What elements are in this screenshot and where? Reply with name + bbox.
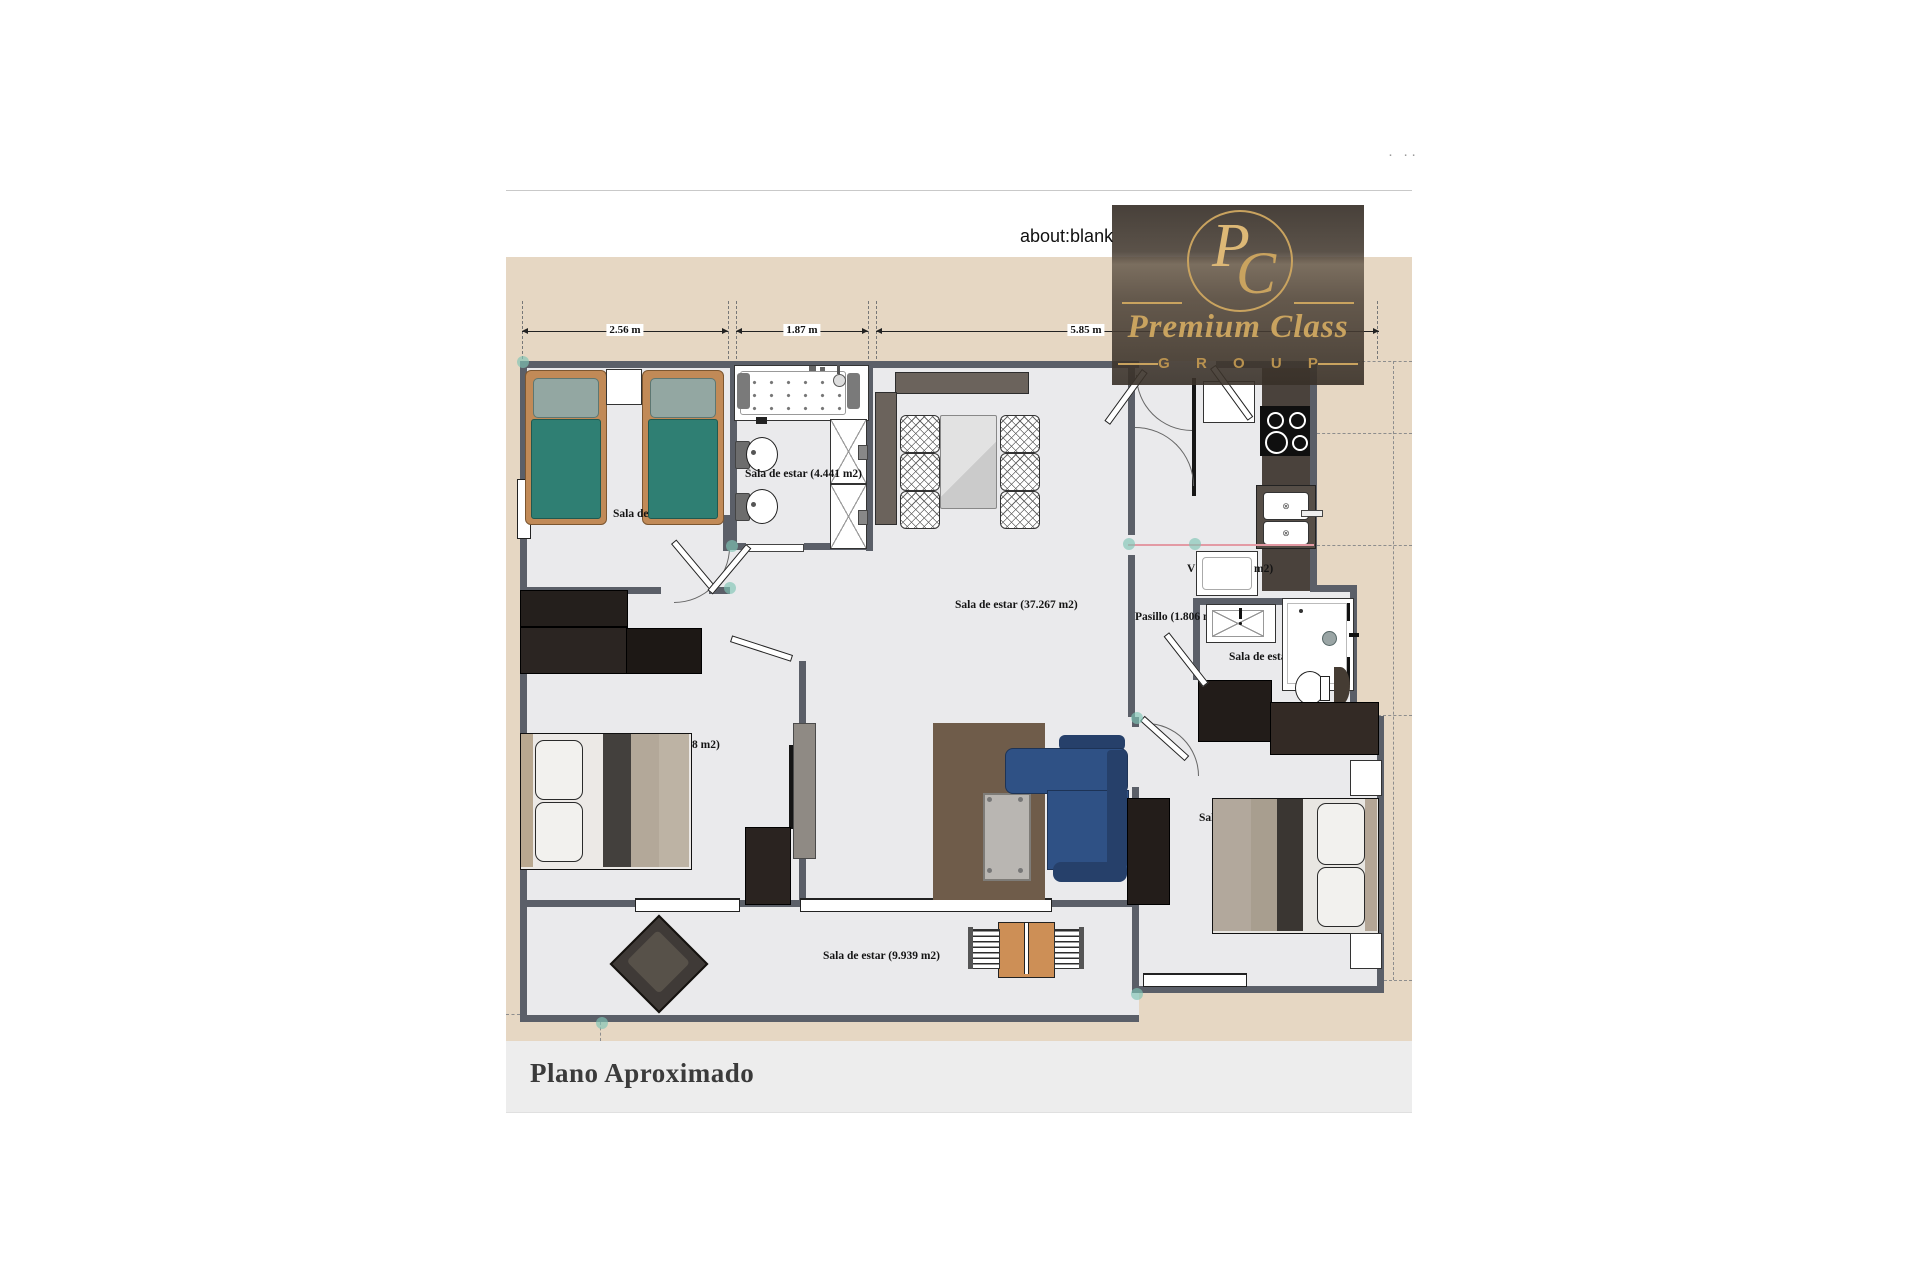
sideboard [875, 392, 897, 525]
bathtub-pad [847, 373, 860, 409]
armchair-cushion [626, 930, 690, 994]
vanity-basin [1212, 610, 1264, 637]
cooktop [1260, 406, 1310, 456]
logo-line [1118, 363, 1158, 365]
table-leg [1018, 797, 1023, 802]
wardrobe [520, 590, 628, 627]
logo-line [1294, 302, 1354, 304]
bathtub-faucet [833, 374, 846, 387]
burner [1289, 412, 1306, 429]
sink-faucet [1301, 510, 1323, 517]
dresser [793, 723, 816, 859]
table-leg [987, 797, 992, 802]
dimension-label: 2.56 m [606, 324, 643, 336]
coffee-table [983, 793, 1031, 881]
plan-footer: Plano Aproximado [506, 1041, 1412, 1113]
room-label: 8 m2) [692, 739, 720, 751]
plan-title: Plano Aproximado [530, 1058, 754, 1089]
burner [1267, 412, 1284, 429]
bed-pillow [650, 378, 716, 418]
dining-chair [900, 491, 940, 529]
wall [1128, 555, 1135, 717]
bath-fixture [820, 367, 825, 371]
window [746, 544, 804, 552]
room-label: Sala de estar (37.267 m2) [955, 599, 1078, 611]
nightstand [1350, 760, 1382, 796]
bed-pillow [533, 378, 599, 418]
cabinet [745, 827, 791, 905]
headboard [521, 734, 533, 867]
bath-fixture [809, 366, 816, 371]
bathtub-pad [737, 373, 750, 409]
outdoor-table [998, 922, 1055, 978]
corner-dots: · ·· [1388, 146, 1419, 163]
tv-panel [789, 745, 793, 829]
bed-pillow [1317, 867, 1365, 927]
outdoor-chair [1054, 929, 1082, 969]
wall [1132, 986, 1384, 993]
toilet [735, 436, 779, 472]
premium-class-logo: P C Premium Class G R O U P [1112, 205, 1364, 385]
joint-dot [1189, 538, 1201, 550]
bed-blanket [1251, 799, 1277, 931]
burner [1265, 431, 1288, 454]
joint-dot [517, 356, 529, 368]
dining-chair [900, 453, 940, 491]
dimension-guide [868, 301, 869, 359]
dimension-label: 5.85 m [1067, 324, 1104, 336]
dimension-guide [728, 301, 729, 359]
joint-dot [1131, 712, 1143, 724]
chair-arm [968, 927, 973, 969]
wardrobe [1270, 702, 1379, 755]
table-leg [987, 868, 992, 873]
boundary-dash [1357, 361, 1412, 362]
boundary-dash [506, 1014, 520, 1015]
wardrobe [520, 627, 628, 674]
chair-arm [1079, 927, 1084, 969]
toilet [735, 488, 779, 524]
boundary-dash [1393, 361, 1394, 980]
logo-line [1122, 302, 1182, 304]
room-label: Sala de [613, 508, 648, 520]
headboard [1365, 799, 1377, 931]
dimension-label: 1.87 m [783, 324, 820, 336]
washer [1196, 551, 1258, 596]
boundary-dash [1384, 980, 1412, 981]
toilet-bowl [746, 489, 778, 524]
bathtub-jets [740, 371, 846, 415]
sideboard [895, 372, 1029, 394]
bed-blanket [531, 419, 601, 519]
wall [520, 1015, 1139, 1022]
bed-pillow [1317, 803, 1365, 865]
tv-cabinet [1127, 798, 1170, 905]
shower-door-line [1347, 603, 1350, 621]
wall [1310, 361, 1317, 592]
dining-table [940, 415, 997, 509]
bed-blanket [1277, 799, 1303, 931]
joint-dot [1131, 988, 1143, 1000]
dining-chair [1000, 491, 1040, 529]
logo-brand-name: Premium Class [1112, 308, 1364, 348]
room-label: Sala de estar (4.441 m2) [745, 468, 862, 480]
joint-dot [1123, 538, 1135, 550]
double-bed [1212, 798, 1379, 934]
wardrobe [626, 628, 702, 674]
bath-fixture [756, 417, 767, 424]
boundary-dash [1317, 433, 1412, 434]
dining-chair [1000, 453, 1040, 491]
bed-blanket [648, 419, 718, 519]
vanity-mark-dot [1239, 622, 1242, 625]
logo-monogram-c: C [1236, 243, 1276, 303]
table-leg [1018, 868, 1023, 873]
room-label: m2) [1254, 563, 1273, 575]
room-label: V [1187, 563, 1195, 575]
sofa-armrest [1053, 862, 1127, 882]
bed-blanket [659, 734, 689, 867]
kitchen-sink-unit: ⊗ ⊗ [1256, 485, 1316, 549]
page-divider-line [506, 190, 1412, 191]
joint-dot [596, 1017, 608, 1029]
window [800, 898, 1052, 912]
boundary-dash [1317, 545, 1412, 546]
dimension-line: 2.56 m [522, 331, 728, 332]
toilet-button [751, 502, 756, 507]
nightstand [606, 369, 642, 405]
joint-dot [726, 540, 738, 552]
sink-basin: ⊗ [1263, 521, 1309, 545]
logo-line [1318, 363, 1358, 365]
vanity-mark [1239, 608, 1242, 619]
reference-line [1128, 544, 1314, 546]
outdoor-chair [972, 929, 1000, 969]
vanity-knob [858, 445, 868, 460]
washer-door [1202, 557, 1252, 590]
kitchen-counter [1262, 368, 1310, 591]
joint-dot [724, 582, 736, 594]
bed-blanket [603, 734, 631, 867]
shower-handle [1349, 633, 1359, 637]
toilet-tank [1320, 676, 1330, 701]
room-label: Sala de estar (9.939 m2) [823, 950, 940, 962]
bed-blanket [1213, 799, 1251, 931]
table-divider [1024, 923, 1029, 974]
burner [1292, 435, 1308, 451]
bathtub-faucet-stem [837, 365, 840, 374]
nightstand [1350, 933, 1382, 969]
shower-dot [1299, 609, 1303, 613]
dining-chair [900, 415, 940, 453]
bed-blanket [631, 734, 659, 867]
toilet-button [751, 450, 756, 455]
shower-head [1322, 631, 1337, 646]
vanity-knob [858, 510, 868, 525]
window [1143, 973, 1247, 987]
dimension-line: 1.87 m [736, 331, 868, 332]
bed-pillow [535, 802, 583, 862]
vanity-sink [1206, 604, 1276, 643]
room-label: Pasillo (1.806 m [1135, 611, 1213, 623]
wall [1310, 585, 1357, 592]
wardrobe [1198, 680, 1272, 742]
bed-pillow [535, 740, 583, 800]
page-url-text: about:blank [1020, 226, 1113, 247]
toilet-bowl [746, 437, 778, 472]
window [635, 898, 740, 912]
sofa-backrest [1107, 750, 1127, 868]
dining-chair [1000, 415, 1040, 453]
double-bed [520, 733, 692, 870]
